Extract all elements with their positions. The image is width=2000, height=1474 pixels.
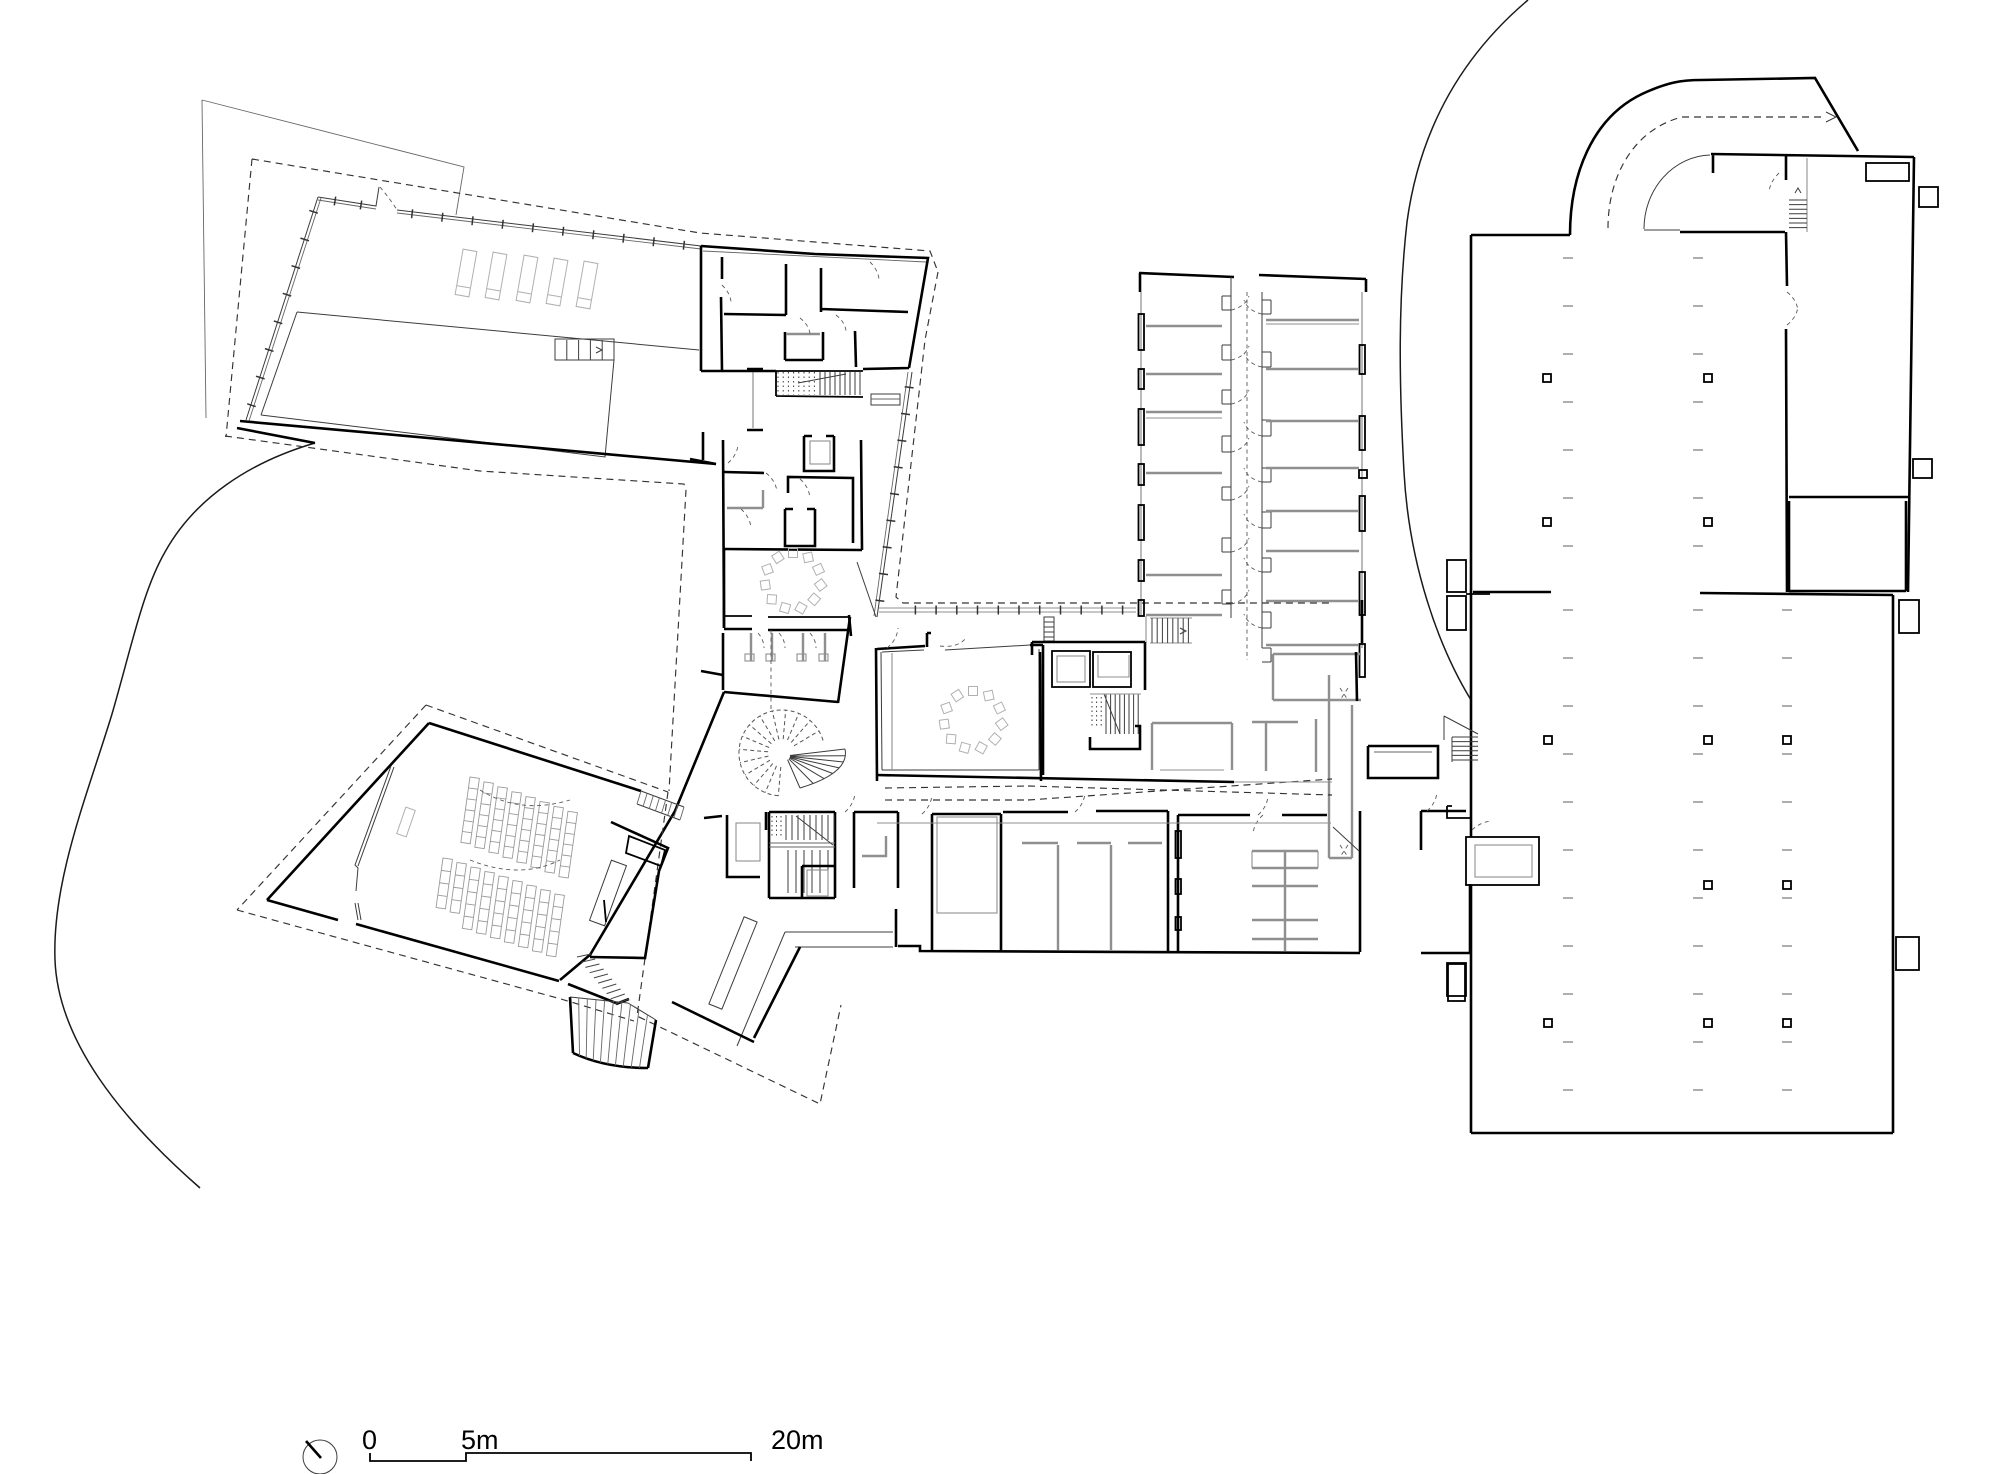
svg-text:5m: 5m [461,1425,499,1455]
svg-text:20m: 20m [771,1425,824,1455]
svg-text:0: 0 [362,1425,377,1455]
